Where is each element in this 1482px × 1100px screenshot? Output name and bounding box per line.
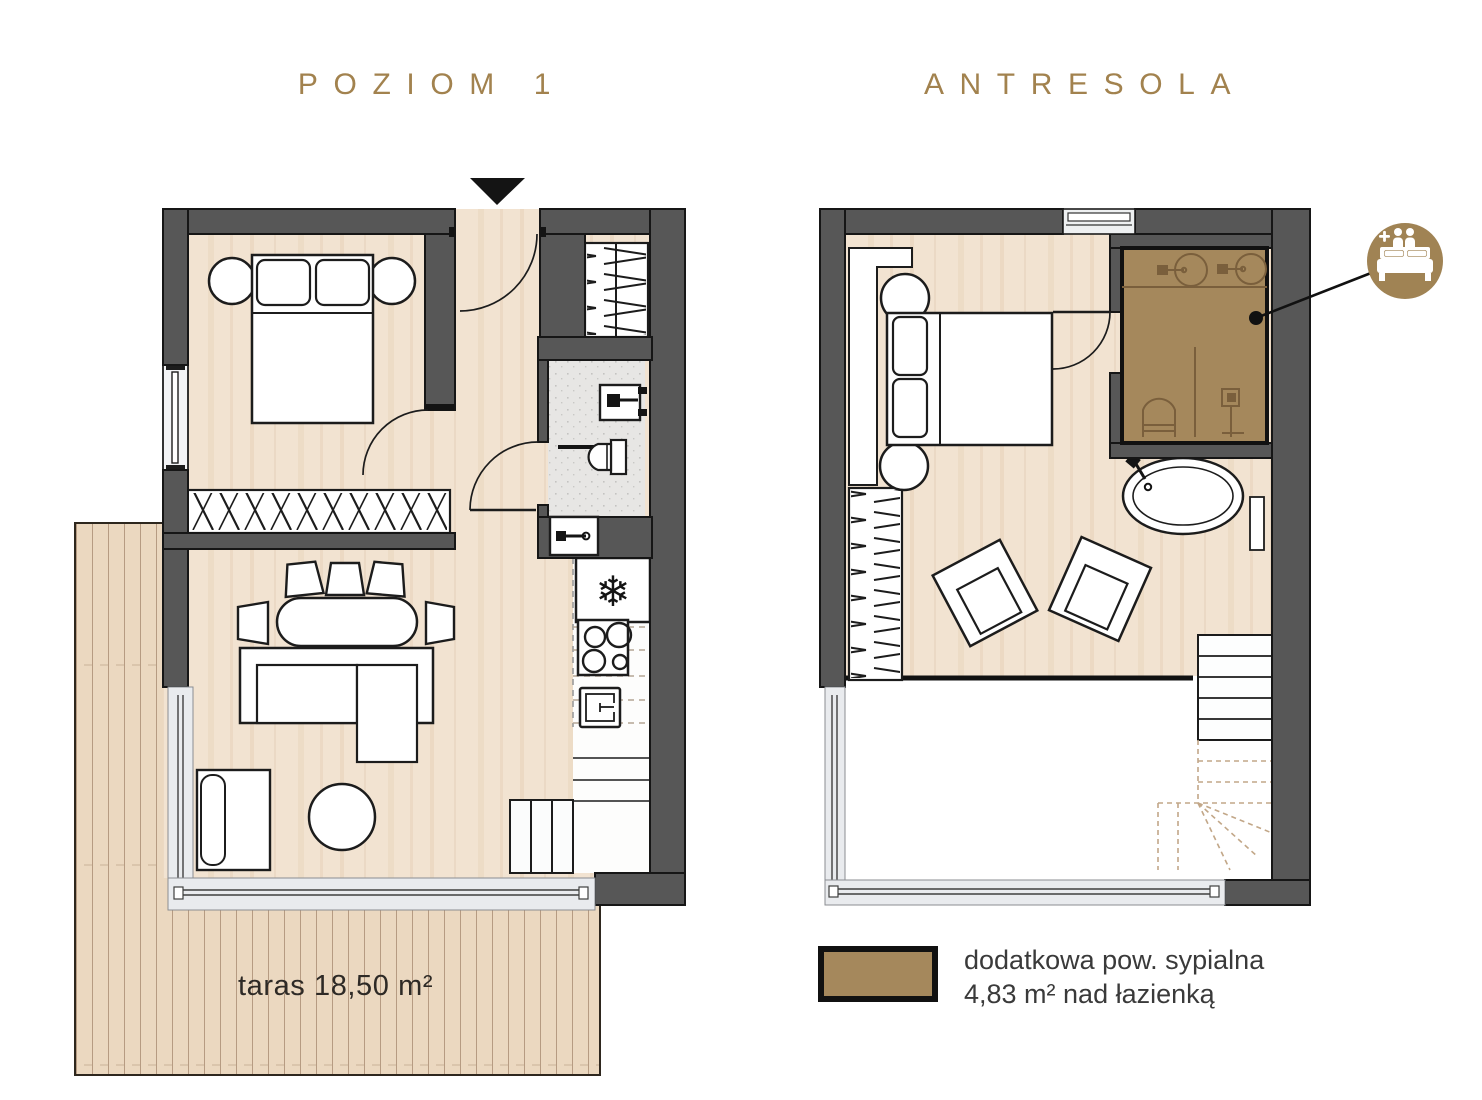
nightstand [209,258,255,304]
terrace-label: taras 18,50 m² [238,970,433,1003]
coffee-table [309,784,375,850]
dining-chair [326,563,364,595]
pillow [893,379,927,437]
wall-pillar [1250,497,1264,550]
entrance-arrow-icon [470,178,525,205]
stairs-up [510,800,573,873]
snowflake-icon: ❄ [595,568,630,615]
pillow [257,260,310,305]
mezzanine-title: ANTRESOLA [905,68,1265,102]
dining-chair [426,602,454,644]
plan-antresola [810,195,1480,915]
legend: dodatkowa pow. sypialna 4,83 m² nad łazi… [818,946,1264,1012]
plan-level1: ❄ [60,165,700,1085]
dining-chair [367,561,408,596]
plan-antresola-svg [810,195,1480,915]
level1-title: POZIOM 1 [252,68,612,102]
floorplan-sheet: POZIOM 1 ANTRESOLA [0,0,1482,1100]
window [1063,209,1135,234]
dining-chair [238,602,268,644]
dining-table [277,598,417,646]
nightstand [880,442,928,490]
nightstand [369,258,415,304]
extra-bed-icon [1367,223,1443,299]
pillow [893,317,927,375]
bedroom-window [163,365,188,470]
armchair [197,770,270,870]
plan-level1-svg: ❄ [60,165,700,1085]
legend-text: dodatkowa pow. sypialna 4,83 m² nad łazi… [964,944,1264,1012]
legend-line2: 4,83 m² nad łazienką [964,978,1264,1012]
kitchen-sink [580,688,620,727]
kitchen: ❄ [573,555,652,873]
pillow [316,260,369,305]
wardrobe [849,488,902,680]
dining-chair [282,561,323,597]
legend-line1: dodatkowa pow. sypialna [964,944,1264,978]
hall-closet [585,243,648,337]
wardrobe-hangers [178,493,447,530]
legend-swatch [818,946,938,1002]
extra-sleeping-area [1122,248,1267,443]
toilet [589,440,626,474]
